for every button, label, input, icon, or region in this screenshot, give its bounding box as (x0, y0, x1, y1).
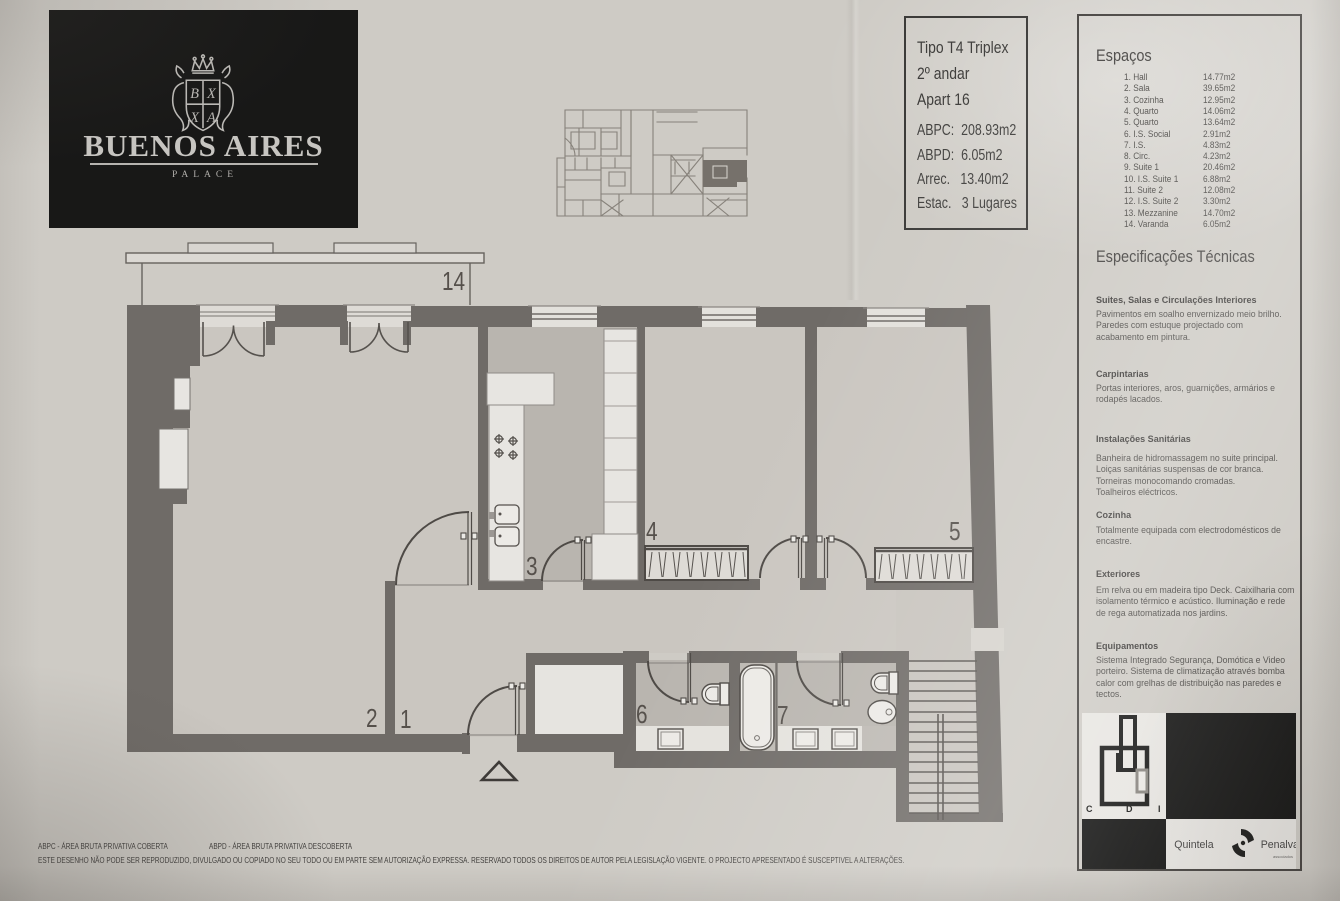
svg-text:Penalva: Penalva (1261, 839, 1296, 851)
svg-text:A: A (206, 110, 216, 126)
svg-text:14: 14 (442, 267, 465, 296)
svg-text:6: 6 (636, 700, 648, 729)
svg-text:Quintela: Quintela (1174, 839, 1214, 851)
svg-text:X: X (206, 86, 217, 102)
svg-text:I: I (1158, 804, 1161, 814)
svg-text:2: 2 (366, 704, 378, 733)
svg-text:X: X (189, 110, 200, 126)
svg-text:4: 4 (646, 517, 658, 546)
svg-text:B: B (190, 86, 199, 102)
svg-text:associados: associados (1273, 854, 1293, 859)
svg-text:5: 5 (949, 517, 961, 546)
svg-text:3: 3 (526, 552, 538, 581)
svg-text:D: D (1126, 804, 1133, 814)
svg-text:1: 1 (400, 705, 412, 734)
svg-text:7: 7 (777, 701, 789, 730)
svg-text:C: C (1086, 804, 1093, 814)
